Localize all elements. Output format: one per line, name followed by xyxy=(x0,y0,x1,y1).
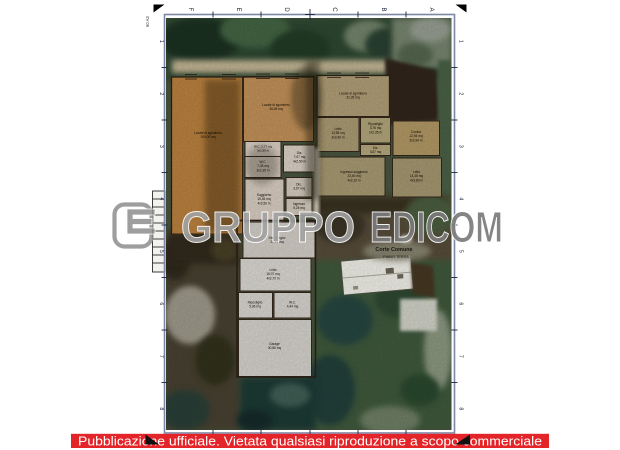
svg-text:5: 5 xyxy=(158,250,164,253)
svg-text:A: A xyxy=(428,7,434,11)
svg-text:1: 1 xyxy=(158,40,164,43)
svg-text:7: 7 xyxy=(158,355,164,358)
svg-text:F: F xyxy=(187,8,193,12)
svg-text:E: E xyxy=(235,7,241,11)
svg-text:EDICOM: EDICOM xyxy=(370,203,503,252)
svg-text:D: D xyxy=(283,7,289,12)
svg-text:4: 4 xyxy=(158,197,164,200)
svg-text:60 A3: 60 A3 xyxy=(145,16,150,27)
svg-text:2: 2 xyxy=(458,92,464,95)
svg-text:7: 7 xyxy=(458,355,464,358)
svg-text:GRUPPO: GRUPPO xyxy=(181,203,355,252)
svg-text:3: 3 xyxy=(458,145,464,148)
svg-text:2: 2 xyxy=(158,92,164,95)
svg-text:3: 3 xyxy=(158,145,164,148)
svg-text:1: 1 xyxy=(458,40,464,43)
svg-text:8: 8 xyxy=(158,407,164,410)
svg-text:6: 6 xyxy=(158,302,164,305)
svg-text:C: C xyxy=(331,7,337,12)
svg-text:B: B xyxy=(380,7,386,11)
svg-text:8: 8 xyxy=(458,407,464,410)
svg-text:4: 4 xyxy=(458,197,464,200)
svg-text:6: 6 xyxy=(458,302,464,305)
